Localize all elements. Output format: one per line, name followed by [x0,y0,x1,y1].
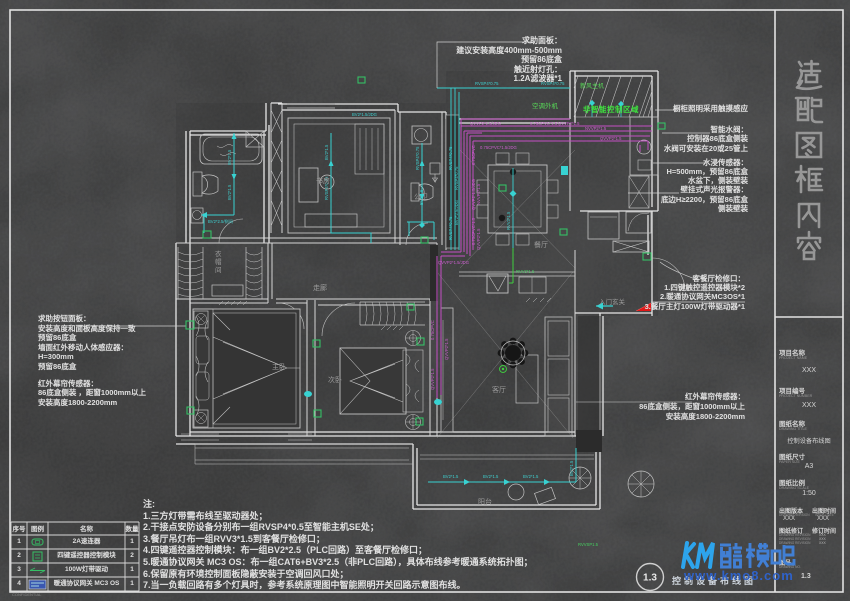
svg-text:QVVP2*1.5: QVVP2*1.5 [444,338,449,360]
svg-text:QVVP2*1.5: QVVP2*1.5 [558,121,580,126]
svg-text:0.75CPVC*1.5/JDG: 0.75CPVC*1.5/JDG [480,145,517,150]
svg-text:BV2*2.5/侧间: BV2*2.5/侧间 [208,218,233,225]
svg-text:BV2*1.5/JDG: BV2*1.5/JDG [352,112,377,117]
svg-text:BV2*1.5: BV2*1.5 [523,474,539,479]
svg-text:QVVP2*1.5/JDG: QVVP2*1.5/JDG [470,121,501,126]
svg-text:RVSP4*0.75: RVSP4*0.75 [448,216,453,240]
svg-text:BV2*2.5/JDG: BV2*2.5/JDG [454,200,459,225]
svg-text:RVSP4*0.75: RVSP4*0.75 [448,146,453,170]
svg-text:RVVSP1.5: RVVSP1.5 [578,542,599,547]
svg-text:QVVP2*1.5: QVVP2*1.5 [476,228,481,250]
svg-text:0.75CPVC: 0.75CPVC [471,145,476,165]
svg-text:RVSP4*0.75: RVSP4*0.75 [415,146,420,170]
svg-text:RVSP4*0.75: RVSP4*0.75 [454,166,459,190]
svg-text:BV2*1.5: BV2*1.5 [483,474,499,479]
svg-text:NVVP2*1.5: NVVP2*1.5 [476,183,481,205]
svg-text:BV2*1.5: BV2*1.5 [227,149,232,165]
svg-text:QVVP2*1.5: QVVP2*1.5 [430,368,435,390]
svg-text:BV2*1.5: BV2*1.5 [227,184,232,200]
svg-text:1.3: 1.3 [643,573,657,584]
svg-text:QVVP2*1.5/JDG: QVVP2*1.5/JDG [438,260,469,265]
svg-text:BV2*1.5: BV2*1.5 [569,460,574,476]
svg-text:RVV3*1.5: RVV3*1.5 [506,211,511,230]
svg-text:RVV3*1.5: RVV3*1.5 [516,269,535,274]
svg-text:0.75CPVC*1.5: 0.75CPVC*1.5 [530,121,558,126]
svg-text:BV2*1.5: BV2*1.5 [324,144,329,160]
svg-text:BV2*1.5: BV2*1.5 [443,474,459,479]
svg-text:0.75CPVC: 0.75CPVC [430,320,435,340]
